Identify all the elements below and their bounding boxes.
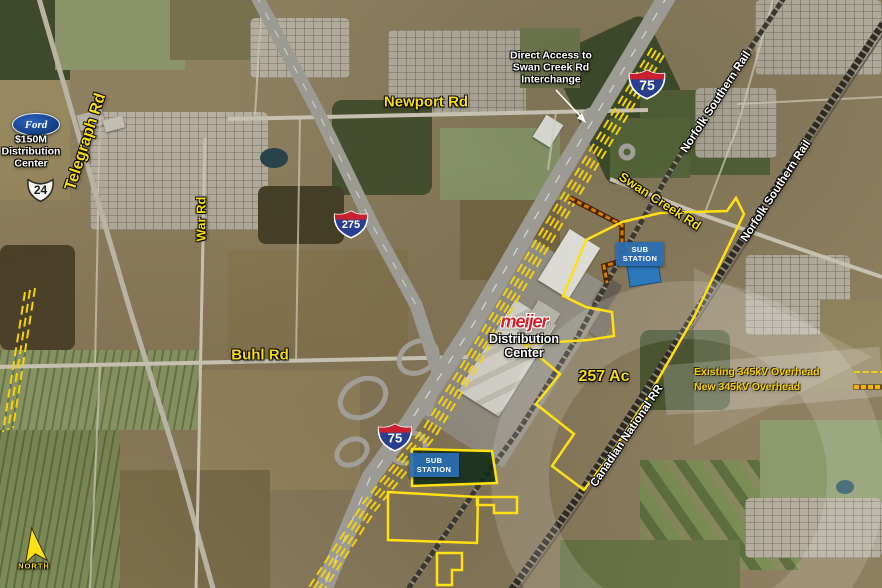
- map-linework: [0, 0, 882, 588]
- legend-row-existing: Existing 345kV Overhead: [694, 364, 882, 379]
- north-arrow-icon: [21, 527, 48, 564]
- i75-shield-number: 75: [627, 77, 667, 93]
- war-rd-label: War Rd: [194, 196, 209, 241]
- ford-line1: $150M: [2, 134, 61, 146]
- us24-shield: 24: [25, 177, 56, 203]
- us24-shield-number: 24: [25, 183, 56, 197]
- highways: [256, 0, 668, 588]
- meijer-line1: Distribution: [489, 332, 559, 346]
- aerial-site-map: 75 275 75 24 Ford $150M Distribution Cen…: [0, 0, 882, 588]
- ford-line2: Distribution: [2, 146, 61, 158]
- legend: Existing 345kV Overhead New 345kV Overhe…: [694, 364, 882, 394]
- parcel-d: [437, 553, 462, 585]
- north-label: NORTH: [18, 562, 50, 571]
- i75-shield-north: 75: [627, 69, 667, 100]
- i275-shield-number: 275: [331, 219, 371, 231]
- legend-row-new: New 345kV Overhead: [694, 379, 882, 394]
- legend-new-line-sample: [854, 385, 882, 389]
- legend-existing-line-sample: [854, 371, 882, 373]
- substation-top-chip: SUB STATION: [616, 242, 664, 266]
- telegraph-road-line: [38, 0, 214, 588]
- i75-shield-south: 75: [376, 423, 414, 452]
- newport-rd-label: Newport Rd: [384, 94, 468, 111]
- direct-access-line3: Interchange: [510, 74, 592, 86]
- meijer-callout: Distribution Center: [489, 332, 559, 360]
- direct-access-arrow: [556, 90, 586, 123]
- buhl-rd-label: Buhl Rd: [231, 347, 289, 364]
- legend-new-label: New 345kV Overhead: [694, 381, 800, 393]
- direct-access-line1: Direct Access to: [510, 50, 592, 62]
- substation-bottom-chip: SUB STATION: [409, 453, 459, 477]
- i75-shield-number: 75: [376, 431, 414, 446]
- meijer-logo: meijer: [500, 312, 547, 333]
- ford-callout: $150M Distribution Center: [2, 134, 61, 169]
- acreage-label: 257 Ac: [579, 368, 630, 386]
- ford-line3: Center: [2, 158, 61, 170]
- parcel-b: [388, 492, 478, 543]
- i275-shield: 275: [331, 210, 371, 239]
- watermark-logo: [520, 268, 882, 588]
- meijer-line2: Center: [489, 346, 559, 360]
- existing-345kv-corridor: [3, 48, 664, 588]
- legend-existing-label: Existing 345kV Overhead: [694, 366, 819, 378]
- direct-access-callout: Direct Access to Swan Creek Rd Interchan…: [510, 50, 592, 85]
- direct-access-line2: Swan Creek Rd: [510, 62, 592, 74]
